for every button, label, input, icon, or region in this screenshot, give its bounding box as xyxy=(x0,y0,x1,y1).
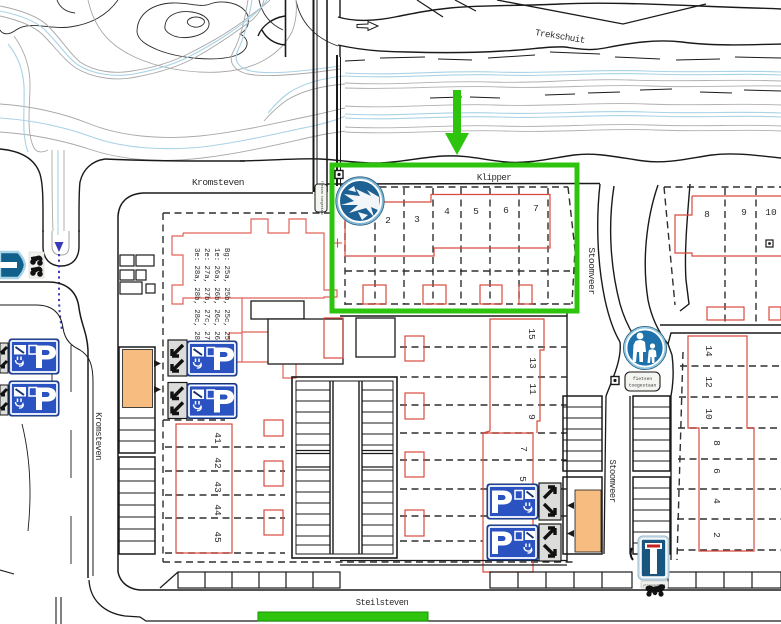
svg-text:4: 4 xyxy=(444,206,450,217)
svg-text:toegestaan: toegestaan xyxy=(629,383,657,389)
svg-text:42: 42 xyxy=(212,457,223,469)
svg-text:13: 13 xyxy=(527,357,538,369)
svg-text:2e: 27a, 27b, 27c, 27d: 2e: 27a, 27b, 27c, 27d xyxy=(202,248,210,344)
svg-text:4: 4 xyxy=(711,498,722,504)
svg-text:Stoomveer: Stoomveer xyxy=(586,247,597,294)
svg-text:9: 9 xyxy=(741,207,747,218)
svg-text:8: 8 xyxy=(711,440,722,446)
svg-text:7: 7 xyxy=(533,203,539,214)
svg-text:10: 10 xyxy=(765,207,777,218)
svg-text:14: 14 xyxy=(703,345,714,357)
svg-text:3: 3 xyxy=(414,214,420,225)
svg-text:3e: 28a, 28b, 28c, 28d: 3e: 28a, 28b, 28c, 28d xyxy=(192,248,200,344)
svg-text:Steilsteven: Steilsteven xyxy=(356,598,409,608)
svg-text:fietsen toegestaan: fietsen toegestaan xyxy=(320,181,324,216)
svg-text:1e: 26a, 26b, 26c, 26d: 1e: 26a, 26b, 26c, 26d xyxy=(212,248,220,344)
svg-text:2: 2 xyxy=(385,215,391,226)
svg-text:5: 5 xyxy=(473,206,479,217)
svg-text:15: 15 xyxy=(526,328,537,340)
svg-text:41: 41 xyxy=(212,432,223,444)
svg-text:Stoomveer: Stoomveer xyxy=(607,459,617,502)
svg-text:Kromsteven: Kromsteven xyxy=(93,412,103,460)
svg-text:10: 10 xyxy=(703,408,714,420)
svg-text:fietsen: fietsen xyxy=(633,376,653,382)
svg-text:45: 45 xyxy=(212,531,223,543)
svg-text:44: 44 xyxy=(212,504,223,516)
svg-text:11: 11 xyxy=(527,383,538,395)
svg-text:12: 12 xyxy=(703,376,714,388)
svg-text:8: 8 xyxy=(704,209,710,220)
svg-text:9: 9 xyxy=(526,414,537,420)
svg-text:2: 2 xyxy=(711,532,722,538)
svg-text:6: 6 xyxy=(711,468,722,474)
svg-text:43: 43 xyxy=(212,481,223,493)
svg-text:Bg: 25a, 25b, 25c, 25d: Bg: 25a, 25b, 25c, 25d xyxy=(222,248,230,344)
svg-text:5: 5 xyxy=(517,476,528,482)
svg-text:Klipper: Klipper xyxy=(477,173,511,183)
svg-text:6: 6 xyxy=(503,205,509,216)
svg-text:Kromsteven: Kromsteven xyxy=(192,177,244,188)
svg-text:7: 7 xyxy=(518,446,529,452)
